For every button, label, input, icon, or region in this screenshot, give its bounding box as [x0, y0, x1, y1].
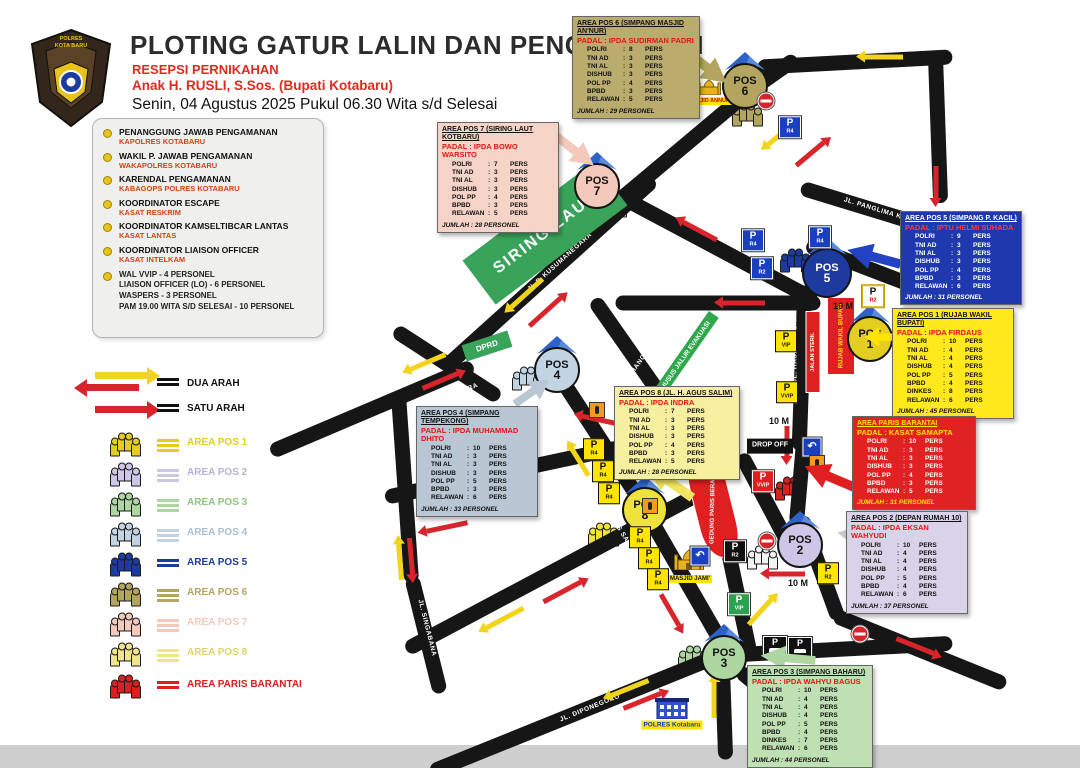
briefing-role: KOORDINATOR LIAISON OFFICER — [119, 245, 317, 255]
area-pos-3-box: AREA POS 3 (SIMPANG BAHARU) PADAL : IPDA… — [747, 665, 873, 768]
pos-num: 7 — [594, 186, 601, 196]
briefing-officer: WAKAPOLRES KOTABARU — [119, 161, 317, 170]
pos-num: 5 — [824, 273, 831, 283]
briefing-officer: KASAT LANTAS — [119, 231, 317, 240]
legend-label: AREA POS 7 — [187, 617, 247, 628]
area-box-title: AREA PARIS BARANTAI — [857, 420, 971, 428]
briefing-item: KOORDINATOR KAMSELTIBCAR LANTAS KASAT LA… — [103, 221, 317, 240]
legend-label: AREA POS 8 — [187, 647, 247, 658]
area-box-padal: PADAL : IPDA SUDIRMAN PADRI — [577, 37, 695, 45]
page-bottom-band — [0, 745, 1080, 768]
no-entry-sign — [852, 626, 869, 643]
legend-dash — [157, 439, 179, 450]
p-text: P — [772, 637, 778, 647]
pos-5-circle: POS5 — [802, 248, 852, 298]
parking-sign-r4: PR4 — [638, 547, 660, 569]
pos-num: 3 — [721, 658, 728, 668]
legend-dash — [157, 378, 179, 389]
briefing-role: KOORDINATOR KAMSELTIBCAR LANTAS — [119, 221, 317, 231]
bullet-icon — [103, 272, 112, 281]
legend-satu-arah: SATU ARAH — [95, 406, 147, 432]
crowd-icon — [111, 528, 139, 547]
pedestrian-warning-sign — [642, 498, 658, 514]
parking-sign-r2: PR2 — [724, 540, 746, 562]
legend-dua-arah: DUA ARAH — [95, 372, 147, 398]
bullet-icon — [103, 129, 112, 138]
u-turn-sign: ↶ — [803, 438, 822, 457]
parking-sign-r2: PR2 — [817, 562, 839, 584]
legend-label: DUA ARAH — [187, 378, 240, 389]
area-box-title: AREA POS 1 (RUJAB WAKIL BUPATI) — [897, 312, 1009, 328]
briefing-item: PENANGGUNG JAWAB PENGAMANAN KAPOLRES KOT… — [103, 127, 317, 146]
parking-sign-r4: PR4 — [809, 226, 831, 248]
area-pos-1-box: AREA POS 1 (RUJAB WAKIL BUPATI) PADAL : … — [892, 308, 1014, 419]
briefing-officer: KAPOLRES KOTABARU — [119, 137, 317, 146]
drop-off-sign: DROP OFF — [747, 439, 793, 454]
area-box-title: AREA POS 2 (DEPAN RUMAH 10) — [851, 515, 963, 523]
legend-dash — [157, 619, 179, 630]
area-box-rows: POLRI:7PERSTNI AD:3PERSTNI AL:3PERSDISHU… — [619, 408, 735, 466]
bullet-icon — [103, 176, 112, 185]
jalan-steril-strip: JALAN STERIL — [806, 311, 821, 393]
p-text: P — [797, 638, 803, 648]
parking-sign-vip: PVIP — [775, 330, 797, 352]
crowd-icon — [111, 588, 139, 607]
legend-dash — [157, 404, 179, 415]
area-box-rows: POLRI:10PERSTNI AD:4PERSTNI AL:4PERSDISH… — [752, 687, 868, 754]
area-box-title: AREA POS 4 (SIMPANG TEMPEKONG) — [421, 410, 533, 426]
briefing-item: KOORDINATOR LIAISON OFFICER KASAT INTELK… — [103, 245, 317, 264]
area-box-padal: PADAL : IPDA INDRA — [619, 399, 735, 407]
area-pos-8-box: AREA POS 8 (JL. H. AGUS SALIM) PADAL : I… — [614, 386, 740, 480]
area-box-total: JUMLAH : 31 PERSONEL — [857, 499, 971, 506]
area-box-padal: PADAL : IPDA FIRDAUS — [897, 329, 1009, 337]
parking-sign-r4: PR4 — [779, 116, 801, 138]
crowd-icon — [111, 558, 139, 577]
pedestrian-warning-sign — [589, 402, 605, 418]
parking-sign-r4: PR4 — [598, 482, 620, 504]
briefing-officer: KASAT RESKRIM — [119, 208, 317, 217]
pos-7-circle: POS7 — [574, 163, 620, 209]
jalan-steril-label: JALAN STERIL — [810, 332, 816, 371]
briefing-role: PENANGGUNG JAWAB PENGAMANAN — [119, 127, 317, 137]
parking-sign-vvip: PVVIP — [776, 381, 798, 403]
legend-dash — [157, 649, 179, 660]
area-box-padal: PADAL : IPDA EKSAN WAHYUDI — [851, 524, 963, 541]
traffic-arrow-red — [934, 166, 939, 198]
parking-sign-vvip: PVVIP — [752, 470, 774, 492]
briefing-footer-line: LIAISON OFFICER (LO) - 6 PERSONEL — [119, 280, 317, 291]
area-box-total: JUMLAH : 45 PERSONEL — [897, 408, 1009, 415]
area-box-title: AREA POS 5 (SIMPANG P. KACIL) — [905, 215, 1017, 223]
pos-2-circle: POS2 — [777, 522, 823, 568]
legend-label: AREA POS 6 — [187, 587, 247, 598]
crowd-icon — [111, 680, 139, 699]
no-entry-sign — [758, 93, 775, 110]
dprd-text: DPRD — [475, 338, 499, 354]
legend-label: AREA POS 4 — [187, 527, 247, 538]
area-pos-2-box: AREA POS 2 (DEPAN RUMAH 10) PADAL : IPDA… — [846, 511, 968, 614]
crowd-icon — [111, 618, 139, 637]
area-box-total: JUMLAH : 31 PERSONEL — [905, 294, 1017, 301]
parking-sign-r4: PR4 — [742, 229, 764, 251]
area-box-title: AREA POS 6 (SIMPANG MASJID AN'NUR) — [577, 20, 695, 36]
parking-sign-r2: PR2 — [751, 257, 773, 279]
area-box-padal: PADAL : IPDA WAHYU BAGUS — [752, 678, 868, 686]
pos-num: 6 — [742, 86, 749, 96]
event-type: RESEPSI PERNIKAHAN — [132, 62, 279, 77]
masjid-jami-label: MASJID JAMI' — [668, 575, 712, 583]
briefing-officer: KASAT INTELKAM — [119, 255, 317, 264]
polres-label: POLRES Kotabaru — [641, 721, 702, 730]
legend-label: SATU ARAH — [187, 403, 245, 414]
event-datetime: Senin, 04 Agustus 2025 Pukul 06.30 Wita … — [132, 96, 497, 114]
area-box-rows: POLRI:9PERSTNI AD:3PERSTNI AL:3PERSDISHU… — [905, 233, 1017, 291]
area-pos-6-box: AREA POS 6 (SIMPANG MASJID AN'NUR) PADAL… — [572, 16, 700, 119]
poster-canvas: POLRES KOTA BARU PLOTING GATUR LALIN DAN… — [0, 0, 1080, 768]
badge-text-line1: POLRES — [28, 36, 114, 42]
bullet-icon — [103, 247, 112, 256]
area-paris-barantai-box: AREA PARIS BARANTAI PADAL : KASAT SAMAPT… — [852, 416, 976, 510]
pos-3-circle: POS3 — [701, 635, 747, 681]
parking-sign-r4: PR4 — [629, 526, 651, 548]
traffic-arrow-yellow — [712, 682, 717, 718]
area-box-padal: PADAL : IPTU HELMI SUHADA — [905, 224, 1017, 232]
area-pos-5-box: AREA POS 5 (SIMPANG P. KACIL) PADAL : IP… — [900, 211, 1022, 305]
area-box-rows: POLRI:10PERSTNI AD:3PERSTNI AL:3PERSDISH… — [421, 445, 533, 503]
briefing-officer: KABAGOPS POLRES KOTABARU — [119, 184, 317, 193]
parking-sign-r4: PR4 — [647, 568, 669, 590]
briefing-item: KARENDAL PENGAMANAN KABAGOPS POLRES KOTA… — [103, 174, 317, 193]
distance-label-10m: 10 M — [833, 301, 853, 311]
legend-dash — [157, 529, 179, 540]
security-briefing-box: PENANGGUNG JAWAB PENGAMANAN KAPOLRES KOT… — [92, 118, 324, 338]
parking-sign-r2: PR2 — [862, 285, 884, 307]
area-box-rows: POLRI:10PERSTNI AD:4PERSTNI AL:4PERSDISH… — [851, 542, 963, 600]
crowd-icon — [111, 498, 139, 517]
area-box-title: AREA POS 7 (SIRING LAUT KOTBARU) — [442, 126, 554, 142]
briefing-footer-line: WASPERS - 3 PERSONEL — [119, 291, 317, 302]
area-box-total: JUMLAH : 28 PERSONEL — [619, 469, 735, 476]
area-box-total: JUMLAH : 28 PERSONEL — [442, 222, 554, 229]
event-host: Anak H. RUSLI, S.Sos. (Bupati Kotabaru) — [132, 78, 393, 93]
area-box-total: JUMLAH : 29 PERSONEL — [577, 108, 695, 115]
rujab-label: RUJAB WAKIL BUPATI — [838, 304, 844, 369]
legend-label: AREA POS 5 — [187, 557, 247, 568]
legend-dash — [157, 469, 179, 480]
parking-sign-vip: PVIP — [728, 593, 750, 615]
briefing-item: KOORDINATOR ESCAPE KASAT RESKRIM — [103, 198, 317, 217]
distance-label-10m: 10 M — [788, 578, 808, 588]
parking-sign-r4: PR4 — [583, 438, 605, 460]
area-box-rows: POLRI:7PERSTNI AD:3PERSTNI AL:3PERSDISHU… — [442, 161, 554, 219]
red-arrow-icon — [87, 384, 139, 391]
traffic-arrow-red — [769, 572, 805, 577]
bullet-icon — [103, 223, 112, 232]
briefing-role: KOORDINATOR ESCAPE — [119, 198, 317, 208]
legend-label: AREA POS 1 — [187, 437, 247, 448]
briefing-footer: WAL VVIP - 4 PERSONEL LIAISON OFFICER (L… — [103, 270, 317, 313]
area-box-total: JUMLAH : 33 PERSONEL — [421, 506, 533, 513]
pos-num: 4 — [554, 370, 561, 380]
distance-label-10m: 10 M — [769, 416, 789, 426]
area-box-total: JUMLAH : 44 PERSONEL — [752, 757, 868, 764]
traffic-arrow-yellow — [865, 55, 903, 60]
u-turn-glyph: ↶ — [807, 441, 816, 453]
briefing-item: WAKIL P. JAWAB PENGAMANAN WAKAPOLRES KOT… — [103, 151, 317, 170]
area-box-padal: PADAL : KASAT SAMAPTA — [857, 429, 971, 437]
pos-num: 2 — [797, 545, 804, 555]
no-entry-sign — [759, 533, 776, 550]
legend-label: AREA POS 3 — [187, 497, 247, 508]
parking-sign-r4: PR4 — [592, 460, 614, 482]
area-box-padal: PADAL : IPDA MUHAMMAD DHITO — [421, 427, 533, 444]
drop-off-text: DROP OFF — [752, 442, 788, 449]
area-box-total: JUMLAH : 37 PERSONEL — [851, 603, 963, 610]
crowd-icon — [111, 468, 139, 487]
area-box-rows: POLRI:10PERSTNI AD:3PERSTNI AL:3PERSDISH… — [857, 438, 971, 496]
area-box-title: AREA POS 8 (JL. H. AGUS SALIM) — [619, 390, 735, 398]
area-box-title: AREA POS 3 (SIMPANG BAHARU) — [752, 669, 868, 677]
briefing-role: KARENDAL PENGAMANAN — [119, 174, 317, 184]
legend-dash — [157, 499, 179, 510]
briefing-footer-line: PAM 19.00 WITA S/D SELESAI - 10 PERSONEL — [119, 302, 317, 313]
area-box-rows: POLRI:10PERSTNI AD:4PERSTNI AL:4PERSDISH… — [897, 338, 1009, 405]
area-pos-4-box: AREA POS 4 (SIMPANG TEMPEKONG) PADAL : I… — [416, 406, 538, 517]
crowd-icon — [111, 438, 139, 457]
legend-label: AREA POS 2 — [187, 467, 247, 478]
crowd-icon — [111, 648, 139, 667]
polres-kotabaru-badge: POLRES KOTA BARU — [28, 28, 114, 128]
badge-text-line2: KOTA BARU — [28, 43, 114, 49]
area-box-padal: PADAL : IPDA BOWO WARSITO — [442, 143, 554, 160]
briefing-role: WAKIL P. JAWAB PENGAMANAN — [119, 151, 317, 161]
briefing-footer-line: WAL VVIP - 4 PERSONEL — [119, 270, 317, 281]
legend-dash — [157, 559, 179, 570]
u-turn-sign: ↶ — [691, 547, 710, 566]
yellow-arrow-icon — [95, 372, 147, 379]
bullet-icon — [103, 153, 112, 162]
traffic-arrow-red — [723, 301, 765, 306]
legend-label: AREA PARIS BARANTAI — [187, 679, 302, 690]
red-arrow-icon — [95, 406, 147, 413]
crowd-pos-2 — [748, 551, 776, 570]
bullet-icon — [103, 200, 112, 209]
legend-dash — [157, 681, 179, 692]
legend-dash — [157, 589, 179, 600]
u-turn-glyph: ↶ — [695, 550, 704, 562]
area-pos-7-box: AREA POS 7 (SIRING LAUT KOTBARU) PADAL :… — [437, 122, 559, 233]
area-box-rows: POLRI:8PERSTNI AD:3PERSTNI AL:3PERSDISHU… — [577, 46, 695, 104]
